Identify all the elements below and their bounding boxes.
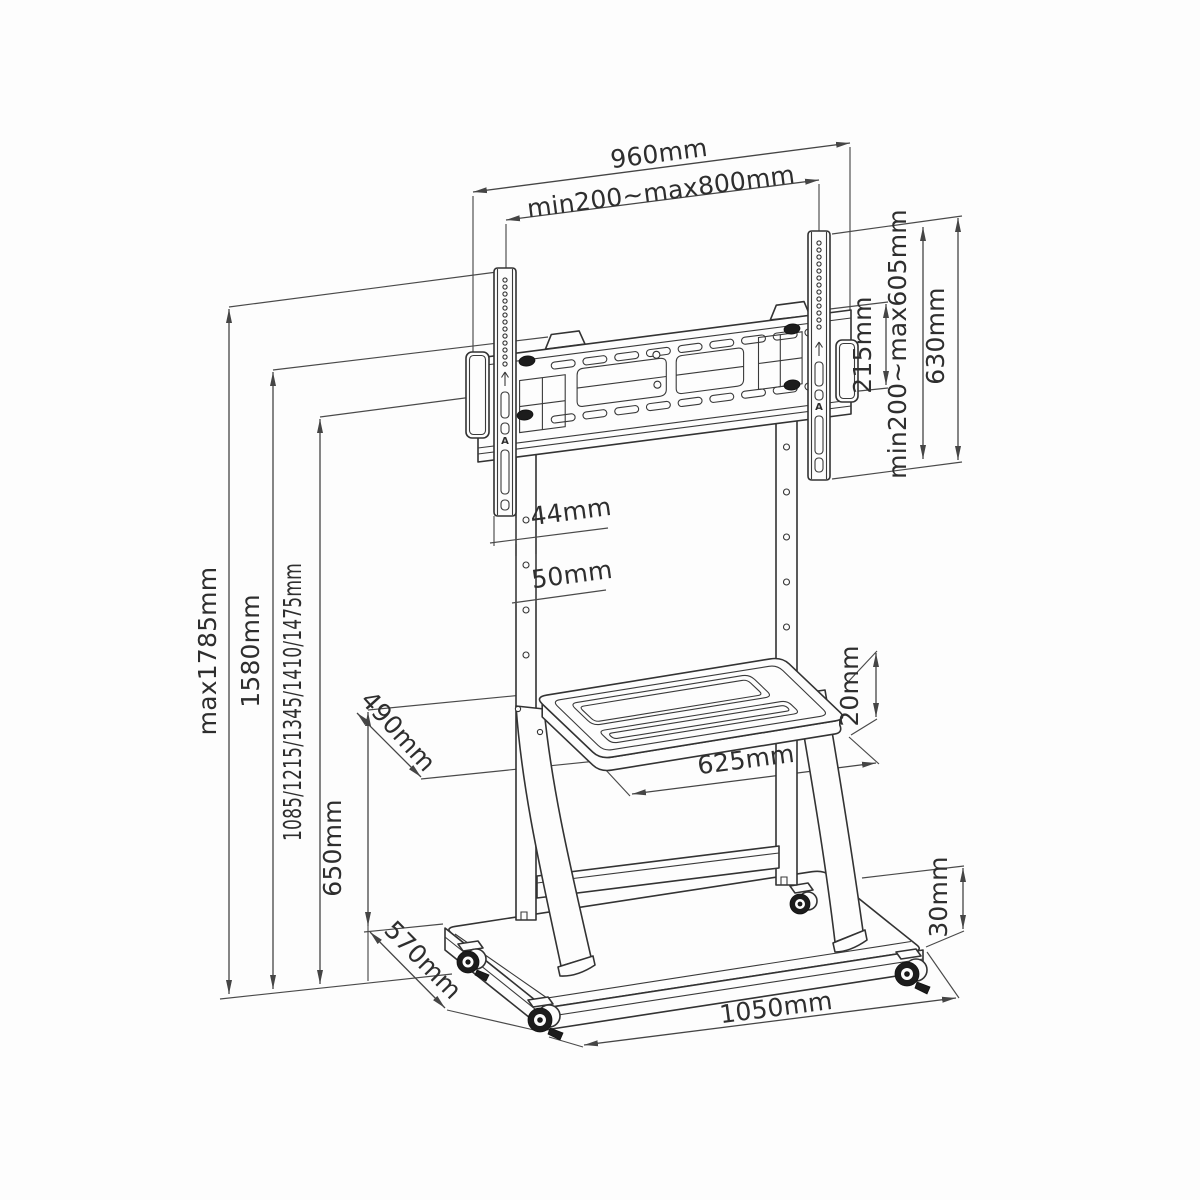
crossbar xyxy=(466,302,858,462)
right-column xyxy=(776,420,797,885)
left-vesa-rail: A xyxy=(494,268,516,516)
dim-overall-height-label: max1785mm xyxy=(193,567,222,736)
dim-shelf-height-label: 650mm xyxy=(318,799,347,896)
dim-column-width-label: 50mm xyxy=(530,555,614,594)
dim-base-thickness-label: 30mm xyxy=(924,856,953,937)
technical-drawing-page: A A xyxy=(0,0,1200,1200)
dim-bracket-rail-height-label: 630mm xyxy=(921,287,950,384)
dim-overall-width-label: 960mm xyxy=(609,133,709,174)
caster-front-right xyxy=(895,949,930,994)
dim-hole-pitch-label: 215mm xyxy=(848,296,877,393)
right-vesa-rail: A xyxy=(808,231,830,480)
dim-screen-center-heights-label: 1085/1215/1345/1410/1475mm xyxy=(278,563,307,841)
rail-logo-left: A xyxy=(501,436,509,447)
rail-logo-right: A xyxy=(815,402,823,413)
dim-vesa-width-label: min200~max800mm xyxy=(525,160,796,223)
dim-shelf-thickness-label: 20mm xyxy=(835,645,864,726)
tv-stand-dimension-drawing: A A xyxy=(0,0,1200,1200)
dim-bracket-top-height-label: 1580mm xyxy=(236,594,265,708)
dim-rail-depth-label: 44mm xyxy=(529,492,613,531)
dim-vesa-height-label: min200~max605mm xyxy=(883,209,912,479)
